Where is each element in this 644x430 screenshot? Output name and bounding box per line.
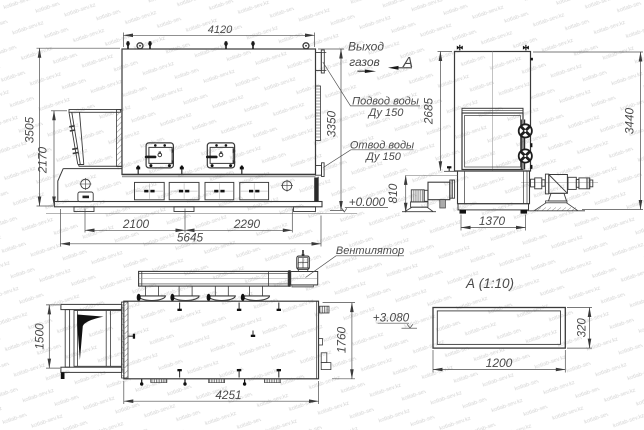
svg-text:4120: 4120 — [208, 24, 233, 36]
svg-text:5645: 5645 — [177, 231, 204, 245]
svg-text:Ду 150: Ду 150 — [367, 107, 405, 119]
svg-text:3440: 3440 — [623, 107, 637, 134]
svg-text:3350: 3350 — [325, 110, 339, 137]
svg-text:1370: 1370 — [479, 214, 506, 228]
svg-text:4251: 4251 — [215, 388, 241, 402]
svg-text:+3.080: +3.080 — [373, 310, 410, 324]
svg-text:320: 320 — [577, 318, 589, 338]
svg-text:1500: 1500 — [33, 323, 47, 350]
svg-text:Подвод воды: Подвод воды — [352, 95, 419, 107]
svg-text:газов: газов — [349, 55, 380, 69]
svg-text:1760: 1760 — [335, 326, 349, 353]
svg-text:2100: 2100 — [122, 217, 150, 231]
svg-text:Вентилятор: Вентилятор — [336, 245, 404, 257]
svg-text:810: 810 — [386, 183, 400, 203]
svg-text:3505: 3505 — [23, 116, 37, 143]
svg-text:1200: 1200 — [486, 356, 513, 370]
svg-text:А (1:10): А (1:10) — [465, 276, 514, 291]
svg-text:Ду 150: Ду 150 — [364, 151, 402, 163]
svg-text:2170: 2170 — [36, 146, 50, 174]
svg-text:Выход: Выход — [348, 40, 384, 54]
svg-text:+0.000: +0.000 — [349, 195, 386, 209]
svg-text:2685: 2685 — [422, 97, 436, 125]
svg-text:2290: 2290 — [233, 217, 261, 231]
